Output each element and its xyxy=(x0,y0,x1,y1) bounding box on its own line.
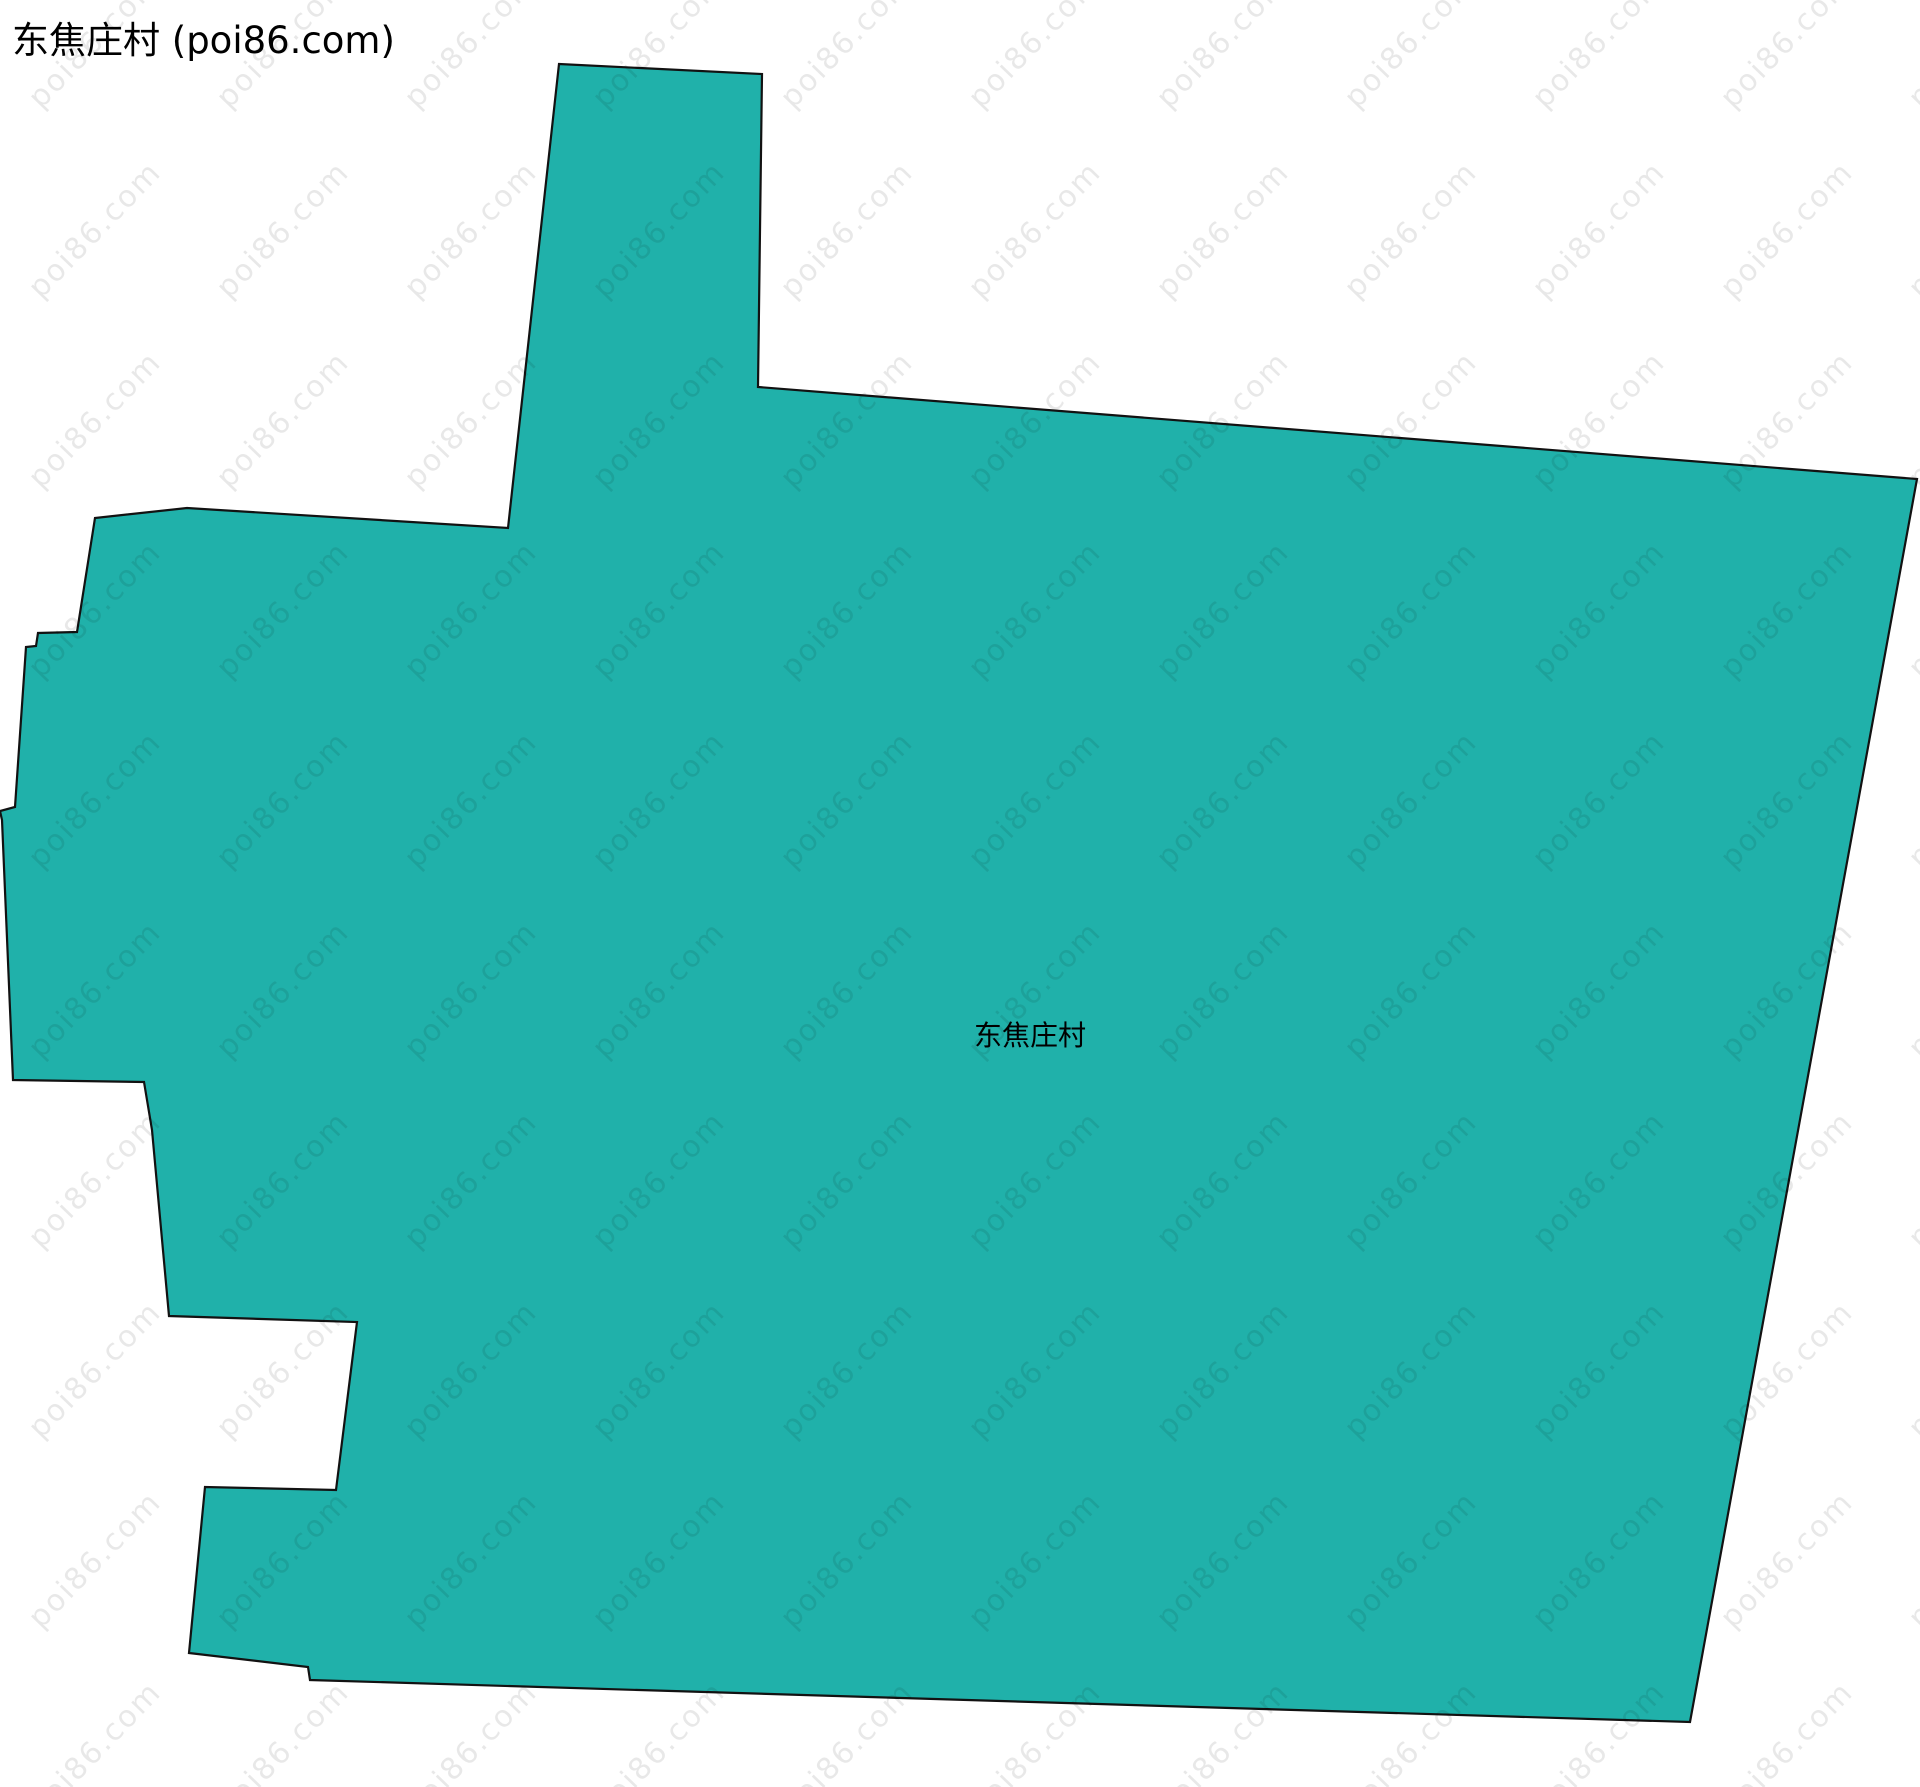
village-boundary-polygon xyxy=(0,64,1917,1722)
region-label: 东焦庄村 xyxy=(974,1014,1086,1054)
map-canvas: poi86.compoi86.compoi86.compoi86.compoi8… xyxy=(0,0,1920,1787)
village-boundary-map xyxy=(0,0,1920,1787)
page-title: 东焦庄村 (poi86.com) xyxy=(12,10,395,64)
